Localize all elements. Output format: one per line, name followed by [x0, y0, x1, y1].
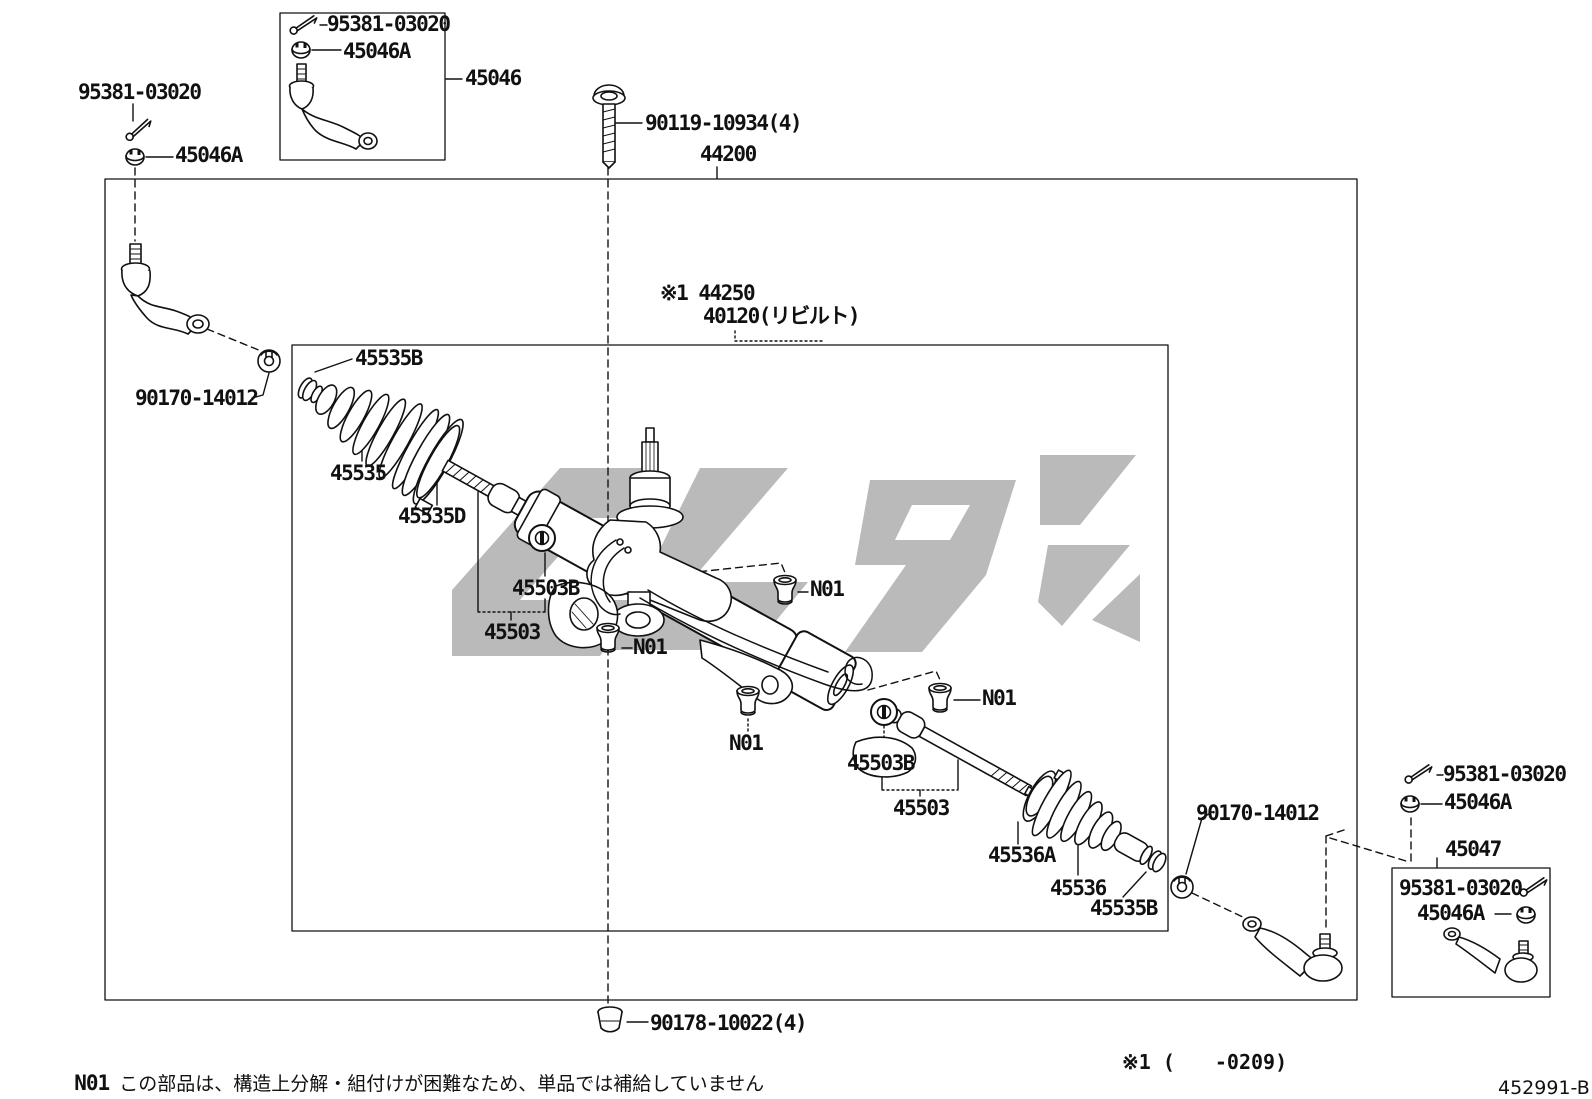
- cotter-pin-icon: [288, 15, 319, 35]
- claw-washer-icon: [529, 525, 555, 551]
- grommet-icon: [597, 624, 619, 653]
- cotter-pin-icon: [123, 118, 154, 141]
- applicability-note: ※1 ( -0209): [1122, 1046, 1287, 1075]
- grommet-icon: [929, 684, 951, 713]
- tie-rod-end-lh-box-drawing: [290, 64, 378, 149]
- lock-washer-bottom-drawing: [598, 1007, 622, 1032]
- part-label-n01-d: N01: [982, 688, 1015, 709]
- castle-nut-icon: [1517, 907, 1535, 923]
- part-label-45535B-lh: 45535B: [355, 348, 422, 369]
- lock-nut-icon: [1171, 876, 1193, 898]
- part-label-45503B-lh: 45503B: [512, 578, 579, 599]
- footnote-code: N01: [74, 1071, 109, 1095]
- mount-bolt-drawing: [593, 85, 625, 168]
- claw-washer-icon: [871, 699, 897, 725]
- part-label-45535: 45535: [330, 463, 386, 484]
- footnote-text: この部品は、構造上分解・組付けが困難なため、単品では補給していません: [109, 1073, 764, 1095]
- part-label-n01-c: N01: [729, 733, 762, 754]
- cotter-pin-icon: [1518, 877, 1549, 897]
- part-label-45503-lh: 45503: [484, 622, 540, 643]
- castle-nut-icon: [126, 149, 144, 165]
- part-label-nut-r: 45046A: [1444, 792, 1511, 813]
- steering-gear-assembly-drawing: [276, 344, 1187, 909]
- part-label-90119: 90119-10934(4): [645, 113, 801, 134]
- part-label-nut-box: 45046A: [343, 41, 410, 62]
- footnote: N01この部品は、構造上分解・組付けが困難なため、単品では補給していません: [55, 1052, 764, 1096]
- part-label-nut-rbox: 45046A: [1417, 903, 1484, 924]
- part-label-nut-tl: 45046A: [175, 145, 242, 166]
- part-label-45503-rh: 45503: [893, 798, 949, 819]
- part-label-45047: 45047: [1445, 839, 1501, 860]
- lock-nut-icon: [258, 350, 280, 372]
- part-label-n01-a: N01: [810, 579, 843, 600]
- parts-diagram-page: 95381-03020 45046A 95381-03020 45046A 45…: [0, 0, 1592, 1099]
- part-label-90170-lh: 90170-14012: [135, 388, 258, 409]
- part-label-45046: 45046: [465, 68, 521, 89]
- part-label-cotter-pin-tl: 95381-03020: [78, 82, 201, 103]
- castle-nut-icon: [292, 42, 310, 58]
- part-label-90170-rh: 90170-14012: [1196, 803, 1319, 824]
- part-label-45535D: 45535D: [398, 506, 465, 527]
- part-label-cotter-pin-r: 95381-03020: [1443, 764, 1566, 785]
- tie-rod-end-right-drawing: [1243, 917, 1342, 981]
- part-label-45536A: 45536A: [988, 845, 1055, 866]
- tie-rod-end-rh-box-drawing: [1444, 928, 1537, 982]
- castle-nut-icon: [1401, 796, 1419, 812]
- part-label-44200: 44200: [700, 144, 756, 165]
- grommet-icon: [774, 576, 796, 605]
- part-label-44250: ※1 44250: [660, 283, 754, 304]
- part-label-cotter-pin-box: 95381-03020: [327, 14, 450, 35]
- part-label-cotter-pin-rbox: 95381-03020: [1399, 878, 1522, 899]
- figure-code: 452991-B: [1498, 1077, 1590, 1099]
- part-label-45503B-rh: 45503B: [847, 753, 914, 774]
- tie-rod-end-left-drawing: [122, 244, 210, 334]
- part-label-90178: 90178-10022(4): [650, 1013, 806, 1034]
- cotter-pin-icon: [1403, 764, 1434, 784]
- frames: [105, 13, 1550, 1000]
- part-label-n01-b: N01: [633, 637, 666, 658]
- part-label-40120: 40120(リビルト): [703, 306, 859, 327]
- leader-lines: [133, 25, 1511, 1022]
- grommet-icon: [737, 687, 759, 716]
- part-label-45535B-rh: 45535B: [1090, 898, 1157, 919]
